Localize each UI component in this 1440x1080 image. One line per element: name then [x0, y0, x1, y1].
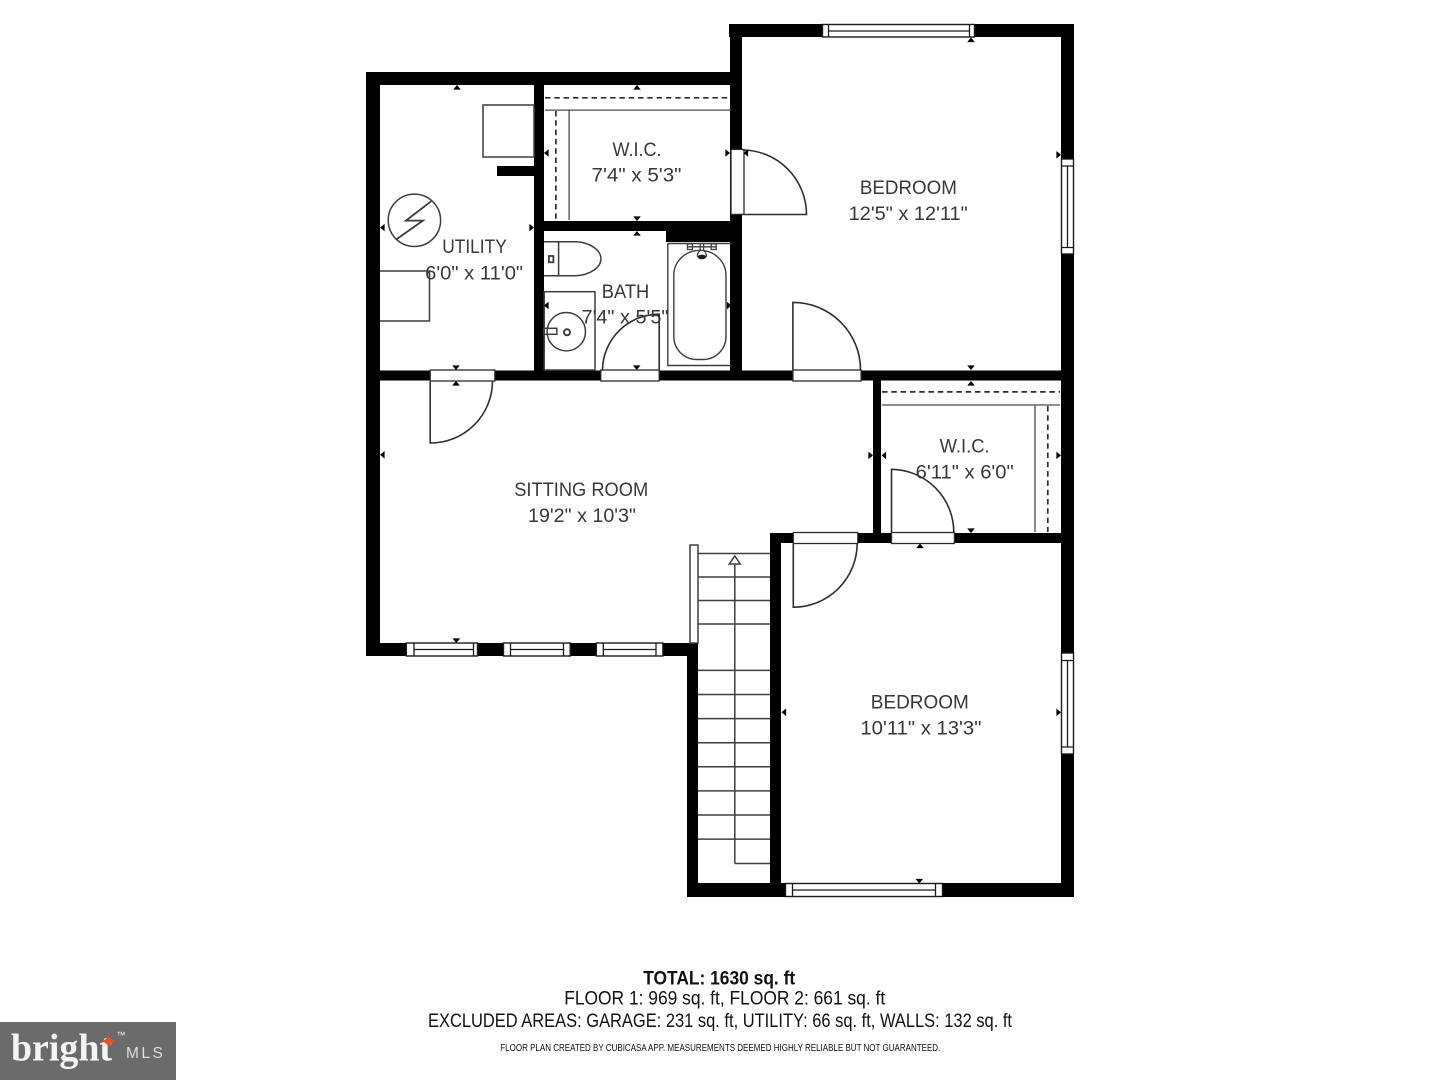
svg-text:MLS: MLS	[126, 1045, 165, 1062]
svg-text:™: ™	[117, 1030, 126, 1040]
svg-text:W.I.C.: W.I.C.	[613, 139, 662, 161]
svg-text:FLOOR 1: 969 sq. ft, FLOOR 2:: FLOOR 1: 969 sq. ft, FLOOR 2: 661 sq. ft	[564, 988, 885, 1010]
svg-text:BEDROOM: BEDROOM	[871, 691, 969, 713]
svg-text:BATH: BATH	[602, 281, 650, 303]
svg-text:7'4" x 5'5": 7'4" x 5'5"	[582, 307, 669, 329]
svg-text:19'2" x 10'3": 19'2" x 10'3"	[528, 505, 636, 527]
svg-text:SITTING ROOM: SITTING ROOM	[514, 479, 648, 501]
svg-text:7'4" x 5'3": 7'4" x 5'3"	[592, 165, 682, 187]
svg-text:W.I.C.: W.I.C.	[940, 436, 990, 458]
svg-text:10'11" x 13'3": 10'11" x 13'3"	[860, 718, 981, 740]
svg-text:TOTAL: 1630 sq. ft: TOTAL: 1630 sq. ft	[643, 967, 795, 989]
svg-text:FLOOR PLAN CREATED BY CUBICASA: FLOOR PLAN CREATED BY CUBICASA APP. MEAS…	[500, 1043, 940, 1054]
svg-text:6'11" x 6'0": 6'11" x 6'0"	[916, 462, 1014, 484]
svg-text:UTILITY: UTILITY	[442, 236, 507, 258]
svg-text:12'5" x 12'11": 12'5" x 12'11"	[849, 203, 968, 225]
svg-text:EXCLUDED AREAS: GARAGE: 231 sq: EXCLUDED AREAS: GARAGE: 231 sq. ft, UTIL…	[428, 1010, 1012, 1032]
svg-text:bright: bright	[11, 1027, 112, 1070]
svg-text:6'0" x 11'0": 6'0" x 11'0"	[425, 263, 523, 285]
svg-text:BEDROOM: BEDROOM	[860, 177, 957, 199]
